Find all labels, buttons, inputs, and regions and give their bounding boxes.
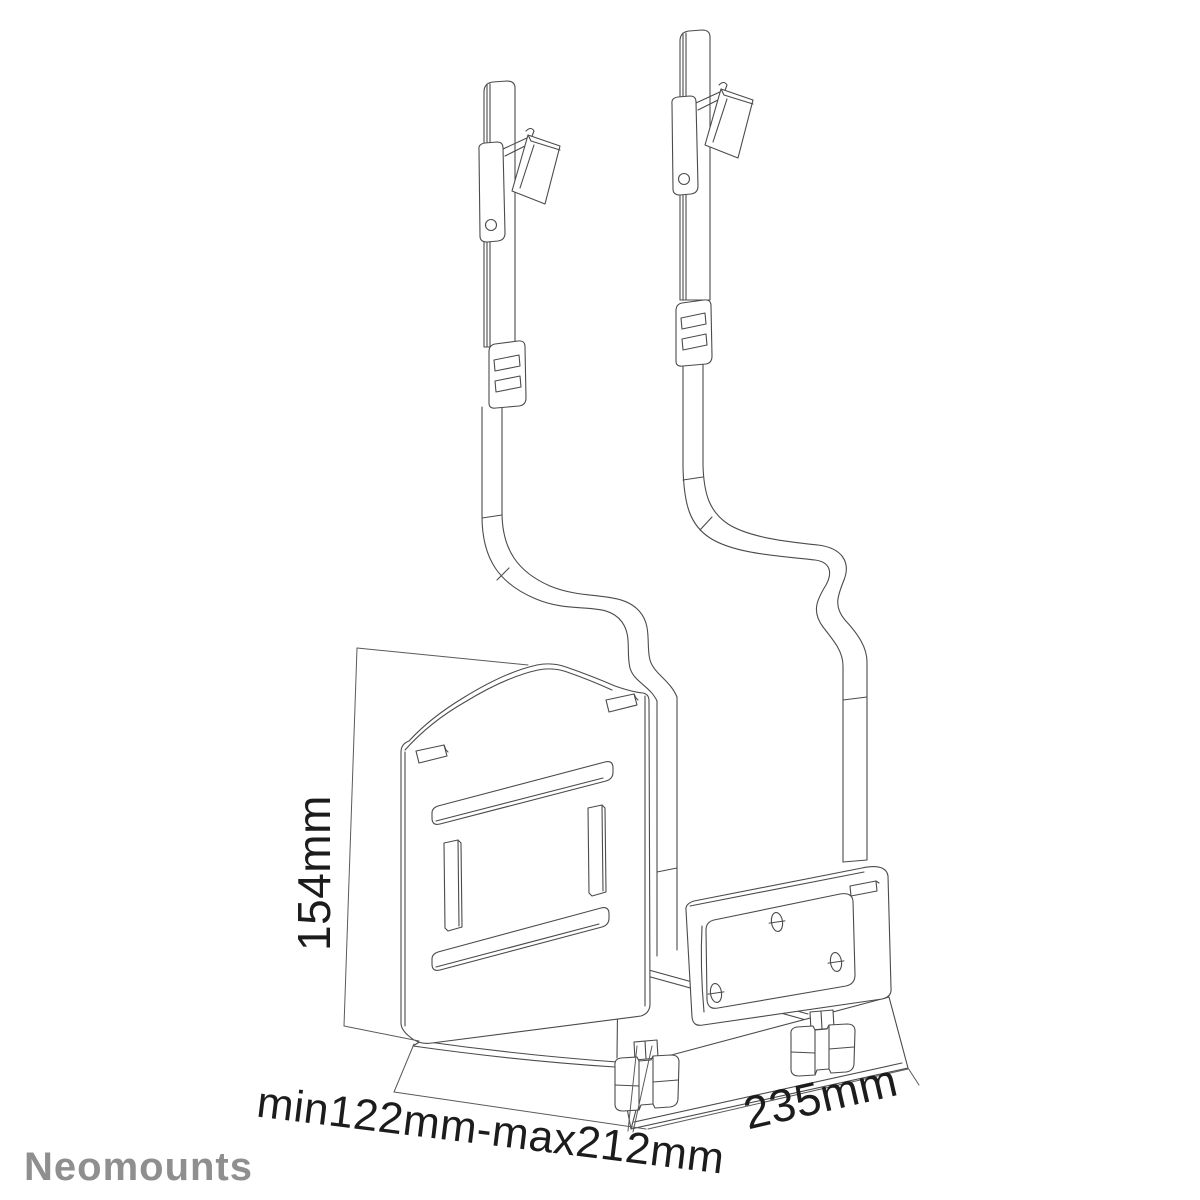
neomounts-logo: Neomounts (24, 1145, 253, 1189)
right-strap-ribbon (683, 466, 867, 862)
right-desk-hook (672, 83, 753, 196)
right-strap-assembly (672, 30, 753, 468)
holder-front-bracket (686, 867, 891, 1026)
hook-arm (512, 135, 560, 204)
left-strap-buckle (489, 341, 526, 408)
adjustment-knob-left (615, 1040, 679, 1111)
left-desk-hook (479, 129, 560, 243)
holder-back-plate (401, 664, 650, 1044)
dimension-label-height: 154mm (288, 795, 340, 951)
product-image-canvas: 154mm min122mm-max212mm 235mm Neomounts (0, 0, 1200, 1200)
hook-arm (705, 89, 753, 158)
cpu-holder-line-drawing: 154mm min122mm-max212mm 235mm Neomounts (0, 0, 1200, 1200)
left-strap-assembly (479, 81, 560, 505)
right-strap-buckle (676, 300, 712, 366)
